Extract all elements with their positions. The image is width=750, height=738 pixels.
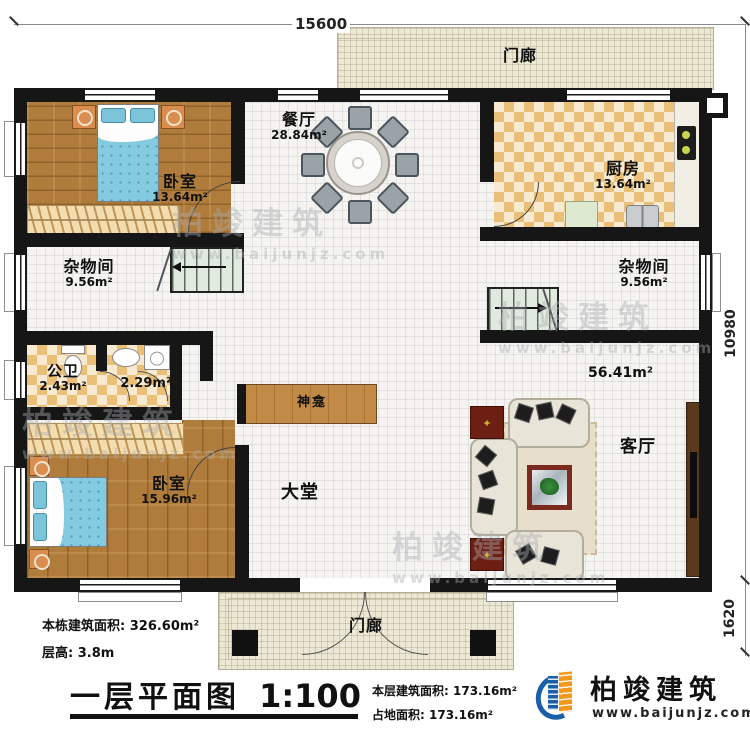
dining-chair	[348, 200, 372, 224]
dimension-top-width: 15600	[292, 15, 350, 33]
toilet-tank	[61, 345, 85, 354]
corner-pillar-core	[707, 98, 723, 113]
window	[699, 255, 712, 310]
hall-area-label: 56.41m²	[588, 366, 652, 382]
nightstand	[29, 549, 49, 569]
bed-pillow	[33, 513, 47, 541]
logo-company-name: 柏竣建筑	[590, 668, 722, 707]
drawing-title-block: 一层平面图 1:100	[70, 672, 361, 716]
window	[80, 578, 180, 592]
window-sill	[486, 592, 618, 602]
nightstand	[161, 105, 185, 129]
bedroom-top-label: 卧室 13.64m²	[148, 173, 212, 204]
wall-stub	[200, 331, 213, 381]
window	[14, 362, 27, 398]
tv-icon	[690, 452, 697, 518]
porch-bottom-label: 门廊	[330, 617, 402, 635]
bed-pillow	[101, 108, 126, 123]
entrance-opening	[300, 578, 430, 592]
stairs-left-arrow-line	[182, 266, 226, 268]
wall	[237, 384, 246, 424]
wall-right	[699, 88, 712, 592]
dining-chair	[301, 153, 325, 177]
stairs-left	[170, 247, 244, 293]
stove-burner	[682, 131, 690, 139]
total-area-info: 本栋建筑面积: 326.60m²	[42, 615, 199, 634]
stairs-right-arrow-head	[538, 303, 547, 313]
logo-website: www.baijunjz.com	[592, 706, 750, 721]
sofa-pillow	[536, 402, 555, 421]
hall-label: 大堂	[268, 483, 332, 503]
storage-left-label: 杂物间 9.56m²	[54, 258, 124, 289]
drawing-scale: 1:100	[259, 677, 361, 715]
washing-machine	[144, 345, 170, 370]
side-table: ✦	[470, 538, 504, 571]
dining-chair	[348, 106, 372, 130]
kitchen-counter	[674, 102, 699, 227]
floor-area-info: 本层建筑面积: 173.16m²	[372, 682, 517, 699]
bathroom-sink	[112, 348, 140, 367]
logo-building-blue-icon	[548, 676, 558, 710]
wall-kitchen-bottom	[480, 227, 712, 241]
nightstand	[29, 456, 49, 476]
top-dimension-line	[14, 24, 746, 25]
wall-bedroom-top-bottom	[14, 233, 244, 247]
bedroom-bottom-closet	[27, 423, 184, 455]
nightstand	[72, 105, 96, 129]
dimension-right-height: 10980	[723, 309, 739, 361]
wall-bedroom-top-right	[231, 88, 245, 184]
living-label: 客厅	[606, 438, 670, 457]
wall-bath-separator	[96, 345, 107, 371]
right-dimension-line	[745, 24, 746, 656]
kitchen-sink	[626, 205, 659, 228]
porch-top-step-line	[338, 38, 711, 39]
floor-plan: 15600 10980 1620 门廊 神龛	[0, 0, 750, 738]
footprint-info: 占地面积: 173.16m²	[372, 706, 493, 723]
bed-pillow	[33, 481, 47, 509]
logo-icon	[536, 670, 582, 724]
porch-column	[232, 630, 258, 656]
wall-bedroom-bottom-right	[235, 445, 249, 592]
wall-storage-right-bottom	[480, 330, 700, 343]
stairs-left-arrow-head	[172, 262, 181, 272]
bed-pillow	[130, 108, 155, 123]
bed-blanket	[58, 478, 106, 546]
window	[85, 88, 155, 102]
company-logo: 柏竣建筑 www.baijunjz.com	[536, 666, 748, 730]
drawing-title: 一层平面图	[70, 680, 240, 715]
window	[14, 468, 27, 544]
dining-label: 餐厅 28.84m²	[264, 111, 334, 142]
logo-building-orange-icon	[559, 671, 572, 712]
window	[567, 88, 670, 102]
window	[14, 255, 27, 310]
bedroom-bottom-label: 卧室 15.96m²	[134, 475, 204, 506]
window-sill	[712, 253, 721, 312]
dining-table-center	[352, 157, 364, 169]
porch-top-label: 门廊	[480, 47, 560, 65]
porch-column	[470, 630, 496, 656]
floor-height-info: 层高: 3.8m	[42, 642, 114, 661]
window	[278, 88, 318, 102]
kitchen-label: 厨房 13.64m²	[588, 160, 658, 191]
window	[488, 578, 616, 592]
bath-inner-label: 2.29m²	[118, 377, 174, 392]
window-sill	[78, 592, 182, 602]
side-table: ✦	[470, 406, 504, 439]
coffee-table-plant	[540, 478, 559, 495]
bathroom-label: 公卫 2.43m²	[34, 363, 92, 393]
dining-chair	[395, 153, 419, 177]
shrine-label: 神龛	[262, 396, 362, 411]
sofa-pillow	[477, 497, 496, 516]
stove-burner	[682, 146, 690, 154]
wall-bath-right	[170, 345, 182, 407]
window	[14, 123, 27, 175]
storage-right-label: 杂物间 9.56m²	[609, 258, 679, 289]
wall-bath-bottom	[14, 407, 182, 420]
window	[360, 88, 448, 102]
stairs-right-arrow-line	[495, 307, 539, 309]
wall-kitchen-left	[480, 102, 494, 182]
title-underline	[70, 714, 358, 719]
dimension-porch-height: 1620	[722, 595, 738, 641]
wall-storage-left-bottom	[14, 331, 213, 345]
bedroom-top-wardrobe	[27, 205, 179, 235]
